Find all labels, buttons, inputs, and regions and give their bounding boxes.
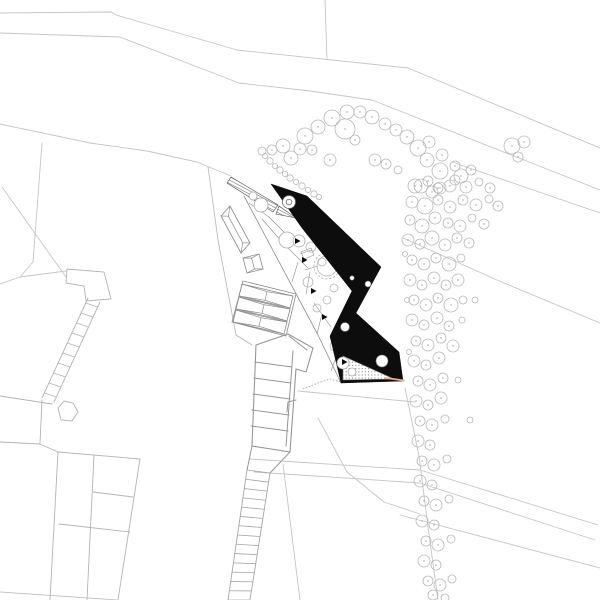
walkway-tree	[348, 368, 356, 376]
rooflight-ring-inner	[286, 199, 292, 205]
roof-light	[341, 323, 350, 332]
gray-building-layer	[247, 334, 313, 473]
sawtooth-step	[86, 303, 98, 307]
square-building-ridge	[252, 258, 255, 269]
tree-center-dot	[447, 222, 448, 223]
tree-center-dot	[414, 185, 415, 186]
tree-center-dot	[428, 141, 429, 142]
gray-complex-line	[255, 362, 292, 367]
stairs-step	[239, 526, 262, 528]
tree-center-dot	[441, 154, 442, 155]
tree-center-dot	[304, 135, 305, 136]
tree	[457, 254, 465, 262]
tree-center-dot	[475, 204, 476, 205]
tree-center-dot	[511, 145, 512, 146]
lane-top-vertical	[325, 0, 327, 59]
sawtooth-step	[49, 383, 61, 387]
parcel-divider-3	[118, 459, 140, 600]
tree-center-dot	[282, 145, 283, 146]
gray-complex-line	[251, 426, 288, 431]
parcel-edge-west-top	[20, 271, 66, 277]
tree-center-dot	[517, 156, 518, 157]
tree-center-dot	[437, 199, 438, 200]
tree-center-dot	[311, 149, 312, 150]
tree	[267, 158, 273, 164]
stairs-step	[232, 572, 254, 573]
tree	[407, 350, 412, 355]
tree-center-dot	[426, 159, 427, 160]
tree-center-dot	[411, 259, 412, 260]
sawtooth-step	[63, 353, 75, 357]
tree-center-dot	[462, 199, 463, 200]
stairs-layer	[228, 470, 270, 600]
tree-center-dot	[354, 139, 355, 140]
tree-center-dot	[457, 279, 458, 280]
tree	[448, 575, 456, 583]
south-parcel-zigzag	[318, 418, 420, 514]
tree-center-dot	[395, 129, 396, 130]
roof-light	[376, 355, 388, 367]
tree-center-dot	[442, 377, 443, 378]
tree-center-dot	[454, 179, 455, 180]
sawtooth-step	[72, 333, 84, 337]
museum-building-layer	[227, 177, 403, 383]
tree-center-dot	[423, 263, 424, 264]
parcel-lane-stub	[40, 400, 42, 443]
tree-center-dot	[483, 223, 484, 224]
tree-center-dot	[290, 157, 291, 158]
tree-center-dot	[423, 560, 424, 561]
tree-center-dot	[454, 165, 455, 166]
tree-center-dot	[437, 187, 438, 188]
tree-center-dot	[449, 206, 450, 207]
tree-center-dot	[425, 364, 426, 365]
tree-center-dot	[436, 317, 437, 318]
corner-diagonal-southwest	[0, 592, 117, 600]
tree	[443, 455, 451, 463]
tree	[467, 417, 473, 423]
tree	[459, 317, 465, 323]
tree-center-dot	[465, 186, 466, 187]
dotted-footpath	[303, 379, 341, 389]
field-boundary-north	[0, 124, 231, 176]
tree-center-dot	[450, 304, 451, 305]
tree-center-dot	[411, 201, 412, 202]
tree-center-dot	[419, 420, 420, 421]
tree-center-dot	[424, 205, 425, 206]
tree-center-dot	[427, 580, 428, 581]
tree	[277, 167, 283, 173]
tree-center-dot	[459, 225, 460, 226]
tree-center-dot	[439, 170, 440, 171]
tree-center-dot	[413, 360, 414, 361]
tree	[403, 252, 408, 257]
tree-center-dot	[411, 319, 412, 320]
tree-center-dot	[470, 169, 471, 170]
tree-center-dot	[415, 400, 416, 401]
tree	[305, 187, 310, 192]
parcels-layer	[0, 269, 140, 600]
roof-strip-2-ridge	[259, 318, 261, 327]
tree-center-dot	[460, 175, 461, 176]
parcel-cross-1	[93, 492, 133, 497]
tree	[287, 175, 293, 181]
sawtooth-step	[81, 313, 93, 317]
stairs-step	[233, 563, 255, 564]
tree-center-dot	[437, 297, 438, 298]
tree-center-dot	[421, 225, 422, 226]
courtyard-planter	[301, 248, 314, 259]
tree-center-dot	[407, 239, 408, 240]
tree-band-west-boundary	[405, 388, 438, 600]
tree-center-dot	[415, 340, 416, 341]
road-north-upper-edge	[0, 12, 600, 148]
tree-center-dot	[456, 237, 457, 238]
stairs-step	[243, 498, 266, 500]
roof-light	[365, 281, 371, 287]
tree-center-dot	[425, 540, 426, 541]
tree-center-dot	[384, 123, 385, 124]
tree-center-dot	[317, 126, 318, 127]
tree-center-dot	[435, 504, 436, 505]
site-plan-drawing	[0, 0, 600, 600]
tree-center-dot	[429, 384, 430, 385]
tree-center-dot	[409, 219, 410, 220]
tree	[485, 195, 493, 203]
courtyard-tree	[323, 296, 331, 304]
tree	[441, 415, 449, 423]
field-boundary-south	[298, 391, 415, 402]
tree-center-dot	[374, 159, 375, 160]
west-parcel-bottom	[0, 396, 52, 404]
tree-center-dot	[489, 187, 490, 188]
tree-center-dot	[497, 205, 498, 206]
stairs-step	[238, 535, 261, 537]
tree-center-dot	[385, 163, 386, 164]
tree-center-dot	[421, 284, 422, 285]
walkway-tree	[249, 192, 257, 200]
tree-center-dot	[427, 404, 428, 405]
road-southeast-edge	[283, 464, 300, 600]
courtyard-tree	[318, 258, 326, 266]
courtyard-path	[292, 262, 298, 282]
sawtooth-step	[44, 393, 56, 397]
tree-center-dot	[427, 180, 428, 181]
tree-center-dot	[425, 304, 426, 305]
tree	[447, 535, 455, 543]
tree-center-dot	[433, 464, 434, 465]
courtyard-tree	[313, 304, 321, 312]
tree	[445, 495, 453, 503]
tree-center-dot	[440, 337, 441, 338]
tree-center-dot	[434, 217, 435, 218]
sawtooth-step	[54, 373, 66, 377]
tree-center-dot	[419, 243, 420, 244]
stairs-step	[235, 554, 257, 555]
tree-center-dot	[449, 185, 450, 186]
tree	[459, 296, 467, 304]
entry-arrow	[311, 288, 317, 294]
gray-complex-line	[254, 378, 291, 383]
tree	[468, 214, 476, 222]
tree-center-dot	[421, 460, 422, 461]
tree-center-dot	[429, 444, 430, 445]
roof-strip-0-ridge	[265, 292, 267, 301]
sawtooth-step	[58, 363, 70, 367]
site-plan-page	[0, 0, 600, 600]
tree-center-dot	[432, 594, 433, 595]
roof-strip-0-ridge	[242, 284, 267, 292]
tree-center-dot	[431, 424, 432, 425]
tree	[272, 163, 277, 168]
tree	[441, 594, 449, 600]
tree-center-dot	[344, 128, 345, 129]
gray-complex-line	[253, 394, 290, 399]
roof-light	[350, 276, 354, 280]
hexagon-tree	[58, 401, 78, 421]
tree	[293, 179, 298, 184]
entry-arrow	[322, 314, 328, 320]
tree-center-dot	[417, 147, 418, 148]
tree-center-dot	[299, 148, 300, 149]
courtyard-tree	[330, 284, 338, 292]
tree	[282, 171, 287, 176]
gray-complex-line	[252, 410, 289, 415]
tree-center-dot	[523, 141, 524, 142]
tree-center-dot	[423, 500, 424, 501]
tree-center-dot	[419, 480, 420, 481]
tree-center-dot	[431, 484, 432, 485]
tree-center-dot	[439, 187, 440, 188]
tree-center-dot	[431, 237, 432, 238]
tree-center-dot	[406, 136, 407, 137]
tree-center-dot	[271, 149, 272, 150]
stairs-step	[242, 507, 265, 509]
tree-center-dot	[331, 117, 332, 118]
tree	[394, 166, 402, 174]
tree-center-dot	[435, 257, 436, 258]
tree-center-dot	[371, 116, 372, 117]
notched-building-outline	[66, 269, 111, 301]
tree-center-dot	[448, 263, 449, 264]
tree-center-dot	[433, 524, 434, 525]
tree-center-dot	[359, 111, 360, 112]
stairs-step	[236, 544, 258, 545]
tree-center-dot	[438, 357, 439, 358]
tree-center-dot	[440, 397, 441, 398]
tree-center-dot	[417, 440, 418, 441]
gray-complex-line	[270, 452, 290, 473]
tree-center-dot	[329, 159, 330, 160]
tree-center-dot	[417, 380, 418, 381]
tree-center-dot	[421, 520, 422, 521]
tree	[299, 183, 305, 189]
road-east-edge	[452, 162, 600, 213]
parcel-cross-2	[59, 524, 130, 532]
tree-center-dot	[346, 111, 347, 112]
stairs-step	[244, 489, 267, 492]
walkway-tree	[279, 232, 295, 248]
gray-complex-outline	[252, 334, 313, 452]
tree	[472, 297, 478, 303]
tree-center-dot	[409, 279, 410, 280]
tree-center-dot	[431, 191, 432, 192]
roads-layer	[0, 0, 600, 600]
tree	[455, 377, 461, 383]
tree	[316, 194, 321, 199]
tree-center-dot	[439, 584, 440, 585]
parcel-divider-1	[50, 452, 58, 600]
courtyard-path	[317, 314, 322, 334]
tree-center-dot	[448, 325, 449, 326]
bar-building-ridge	[228, 216, 242, 243]
gray-complex-line	[247, 446, 252, 470]
sawtooth-step	[67, 343, 79, 347]
tree-center-dot	[413, 299, 414, 300]
parcel-top-edge	[0, 442, 140, 459]
stairs-step	[246, 479, 269, 482]
tree-center-dot	[433, 277, 434, 278]
tree-center-dot	[468, 242, 469, 243]
tree-center-dot	[452, 345, 453, 346]
tree-center-dot	[435, 564, 436, 565]
tree-center-dot	[423, 324, 424, 325]
walkway-tree	[254, 198, 268, 212]
sawtooth-step	[77, 323, 89, 327]
parcel-diagonal-west	[2, 187, 66, 277]
path-through-trees	[403, 238, 600, 323]
roof-strip-1-ridge	[262, 305, 264, 314]
tree	[475, 178, 483, 186]
tree-center-dot	[427, 344, 428, 345]
stairs-step	[240, 516, 263, 518]
tree-center-dot	[444, 244, 445, 245]
tree-center-dot	[420, 185, 421, 186]
tree-center-dot	[437, 544, 438, 545]
courtyard-path	[306, 272, 310, 294]
tree-center-dot	[445, 284, 446, 285]
